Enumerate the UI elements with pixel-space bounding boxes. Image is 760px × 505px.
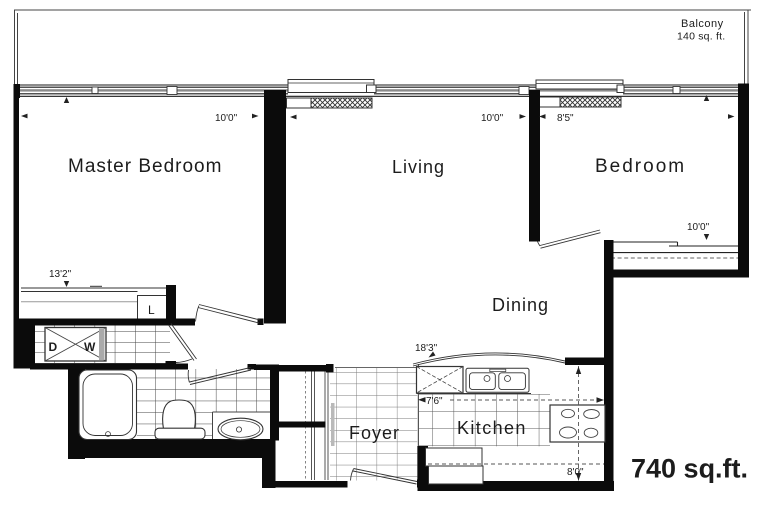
svg-text:10'0": 10'0" [687, 222, 710, 233]
svg-text:Balcony: Balcony [681, 18, 724, 30]
svg-text:Foyer: Foyer [349, 423, 400, 443]
svg-text:7'6": 7'6" [426, 396, 443, 407]
svg-text:Master Bedroom: Master Bedroom [68, 156, 222, 177]
svg-text:140 sq. ft.: 140 sq. ft. [677, 31, 725, 43]
svg-text:Kitchen: Kitchen [457, 418, 527, 438]
svg-text:10'0": 10'0" [215, 113, 238, 124]
svg-text:740 sq.ft.: 740 sq.ft. [631, 454, 748, 484]
svg-text:Bedroom: Bedroom [595, 156, 686, 177]
svg-text:18'3": 18'3" [415, 343, 438, 354]
svg-text:8'5": 8'5" [557, 113, 574, 124]
svg-text:W: W [84, 340, 96, 354]
svg-text:Dining: Dining [492, 295, 549, 315]
svg-text:13'2": 13'2" [49, 269, 72, 280]
svg-text:8'0": 8'0" [567, 467, 584, 478]
svg-text:Living: Living [392, 157, 445, 177]
svg-text:D: D [49, 340, 58, 354]
svg-text:10'0": 10'0" [481, 113, 504, 124]
svg-text:L: L [148, 303, 155, 317]
